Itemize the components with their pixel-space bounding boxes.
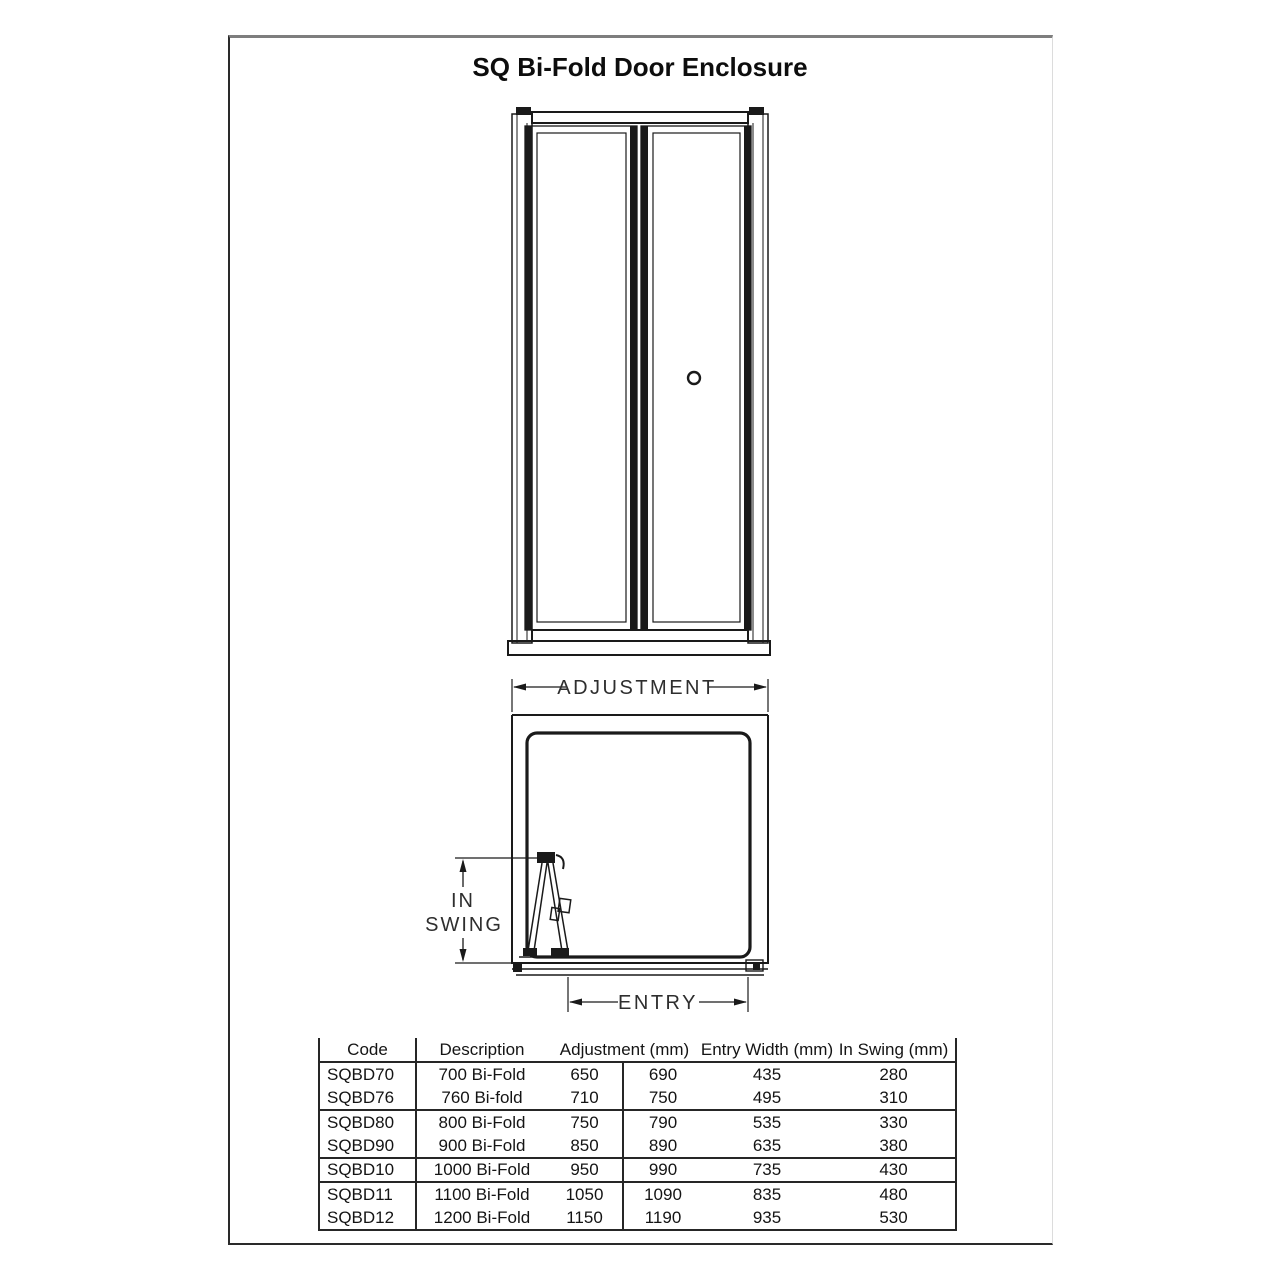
cell-adjustment-min: 1150: [547, 1207, 624, 1231]
spec-table: Code Description Adjustment (mm) Entry W…: [318, 1038, 957, 1231]
cell-in-swing: 330: [832, 1111, 955, 1135]
dimension-entry: ENTRY: [568, 977, 748, 1014]
column-header-description: Description: [417, 1038, 547, 1063]
plan-view: [512, 715, 768, 975]
right-door-panel: [641, 126, 751, 630]
cell-code: SQBD90: [320, 1135, 417, 1159]
cell-adjustment-min: 650: [547, 1063, 624, 1087]
cell-adjustment-min: 950: [547, 1159, 624, 1183]
cell-adjustment-max: 1190: [624, 1207, 702, 1231]
cell-code: SQBD80: [320, 1111, 417, 1135]
cell-description: 900 Bi-Fold: [417, 1135, 547, 1159]
cell-in-swing: 480: [832, 1183, 955, 1207]
column-header-in-swing: In Swing (mm): [832, 1038, 955, 1063]
cell-adjustment-max: 890: [624, 1135, 702, 1159]
left-door-panel: [525, 126, 637, 630]
cell-in-swing: 310: [832, 1087, 955, 1111]
cell-adjustment-max: 750: [624, 1087, 702, 1111]
cell-code: SQBD12: [320, 1207, 417, 1231]
in-swing-label-line2: SWING: [425, 914, 503, 936]
sill: [508, 641, 770, 655]
shower-tray: [527, 733, 750, 957]
door-knob-icon: [688, 372, 700, 384]
cell-entry-width: 635: [702, 1135, 832, 1159]
cell-description: 1000 Bi-Fold: [417, 1159, 547, 1183]
column-header-adjustment: Adjustment (mm): [547, 1038, 702, 1063]
cell-adjustment-min: 710: [547, 1087, 624, 1111]
bottom-rail: [532, 630, 748, 641]
elevation-view: [508, 107, 770, 655]
cell-code: SQBD10: [320, 1159, 417, 1183]
cell-adjustment-min: 850: [547, 1135, 624, 1159]
cell-description: 800 Bi-Fold: [417, 1111, 547, 1135]
cell-entry-width: 435: [702, 1063, 832, 1087]
cell-description: 1200 Bi-Fold: [417, 1207, 547, 1231]
cell-code: SQBD11: [320, 1183, 417, 1207]
column-header-code: Code: [320, 1038, 417, 1063]
top-rail: [532, 112, 748, 123]
in-swing-label-line1: IN: [451, 890, 475, 912]
cell-entry-width: 735: [702, 1159, 832, 1183]
arrow-up-icon: [460, 859, 467, 872]
cell-adjustment-max: 790: [624, 1111, 702, 1135]
column-header-entry-width: Entry Width (mm): [702, 1038, 832, 1063]
dimension-adjustment: ADJUSTMENT: [512, 677, 768, 712]
cell-in-swing: 530: [832, 1207, 955, 1231]
cell-entry-width: 535: [702, 1111, 832, 1135]
cell-entry-width: 835: [702, 1183, 832, 1207]
entry-label: ENTRY: [618, 992, 698, 1014]
cell-entry-width: 495: [702, 1087, 832, 1111]
cell-adjustment-min: 750: [547, 1111, 624, 1135]
cell-adjustment-max: 1090: [624, 1183, 702, 1207]
arrow-right-icon: [754, 684, 767, 691]
arrow-down-icon: [460, 949, 467, 962]
bottom-track: [512, 960, 768, 975]
cell-description: 1100 Bi-Fold: [417, 1183, 547, 1207]
cell-in-swing: 280: [832, 1063, 955, 1087]
cell-adjustment-max: 690: [624, 1063, 702, 1087]
arrow-left-icon: [513, 684, 526, 691]
cell-code: SQBD76: [320, 1087, 417, 1111]
cell-in-swing: 430: [832, 1159, 955, 1183]
arrow-right-icon: [734, 999, 747, 1006]
cell-code: SQBD70: [320, 1063, 417, 1087]
cell-adjustment-min: 1050: [547, 1183, 624, 1207]
cell-adjustment-max: 990: [624, 1159, 702, 1183]
arrow-left-icon: [569, 999, 582, 1006]
cell-description: 760 Bi-fold: [417, 1087, 547, 1111]
spec-sheet-canvas: SQ Bi-Fold Door Enclosure: [0, 0, 1280, 1280]
cell-description: 700 Bi-Fold: [417, 1063, 547, 1087]
adjustment-label: ADJUSTMENT: [557, 677, 716, 699]
cell-entry-width: 935: [702, 1207, 832, 1231]
cell-in-swing: 380: [832, 1135, 955, 1159]
